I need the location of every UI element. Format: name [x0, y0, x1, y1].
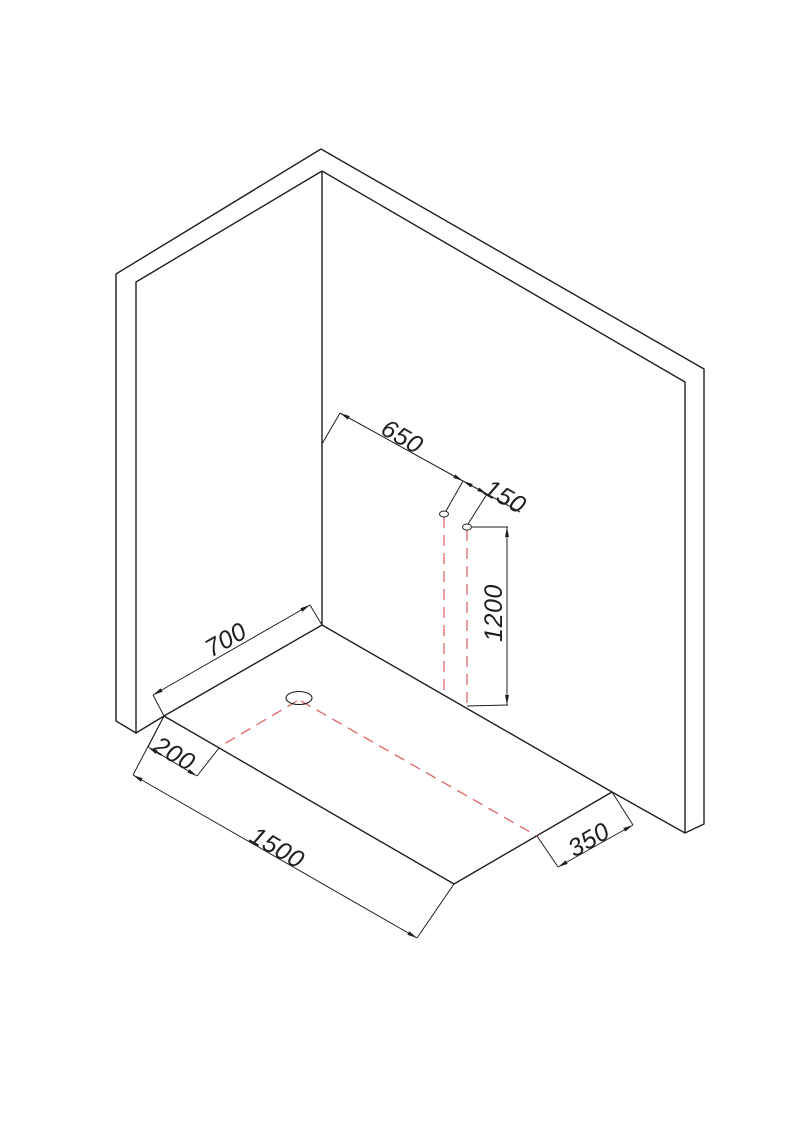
dim-label-350: 350	[563, 817, 614, 863]
dim-arrow-700-a	[153, 688, 163, 695]
dim-arrow-150-a	[463, 481, 473, 488]
wall-pipe-1	[440, 511, 449, 517]
right-wall-base	[612, 792, 685, 833]
dim-arrow-1500-b	[407, 931, 417, 938]
dim-arrow-650-b	[453, 474, 463, 481]
wall-pipe-2	[463, 524, 472, 530]
dim-ext-700-1	[310, 605, 322, 625]
dim-ext-350-1	[612, 792, 633, 825]
dim-ext-1200-1	[467, 705, 508, 706]
waste-floor-branch	[219, 701, 297, 747]
dim-arrow-350-a	[558, 860, 568, 867]
dim-label-1500: 1500	[245, 821, 309, 874]
dim-ext-650-0	[322, 413, 340, 444]
dim-label-1200: 1200	[480, 584, 508, 642]
dim-label-650: 650	[376, 414, 427, 460]
dim-arrow-700-b	[300, 605, 310, 612]
dim-arrow-1200-a	[505, 527, 509, 537]
dim-arrow-350-b	[623, 825, 633, 832]
dim-ext-1500-1	[417, 884, 454, 938]
dim-ext-200-1	[197, 748, 219, 776]
dim-arrow-1500-a	[133, 775, 143, 782]
dim-label-700: 700	[200, 617, 251, 663]
drawing-page: 65015012007002001500350	[0, 0, 793, 1121]
dim-label-200: 200	[147, 731, 199, 777]
shower-tray-outline	[164, 625, 612, 884]
dim-ext-650-1	[446, 481, 463, 511]
isometric-cad-drawing: 65015012007002001500350	[0, 0, 793, 1121]
dim-label-150: 150	[479, 474, 530, 520]
drain-hole	[286, 692, 312, 705]
dim-ext-350-0	[537, 836, 558, 867]
dim-arrow-1200-b	[505, 695, 509, 705]
dim-ext-700-0	[153, 695, 164, 716]
dim-arrow-650-a	[340, 413, 350, 420]
